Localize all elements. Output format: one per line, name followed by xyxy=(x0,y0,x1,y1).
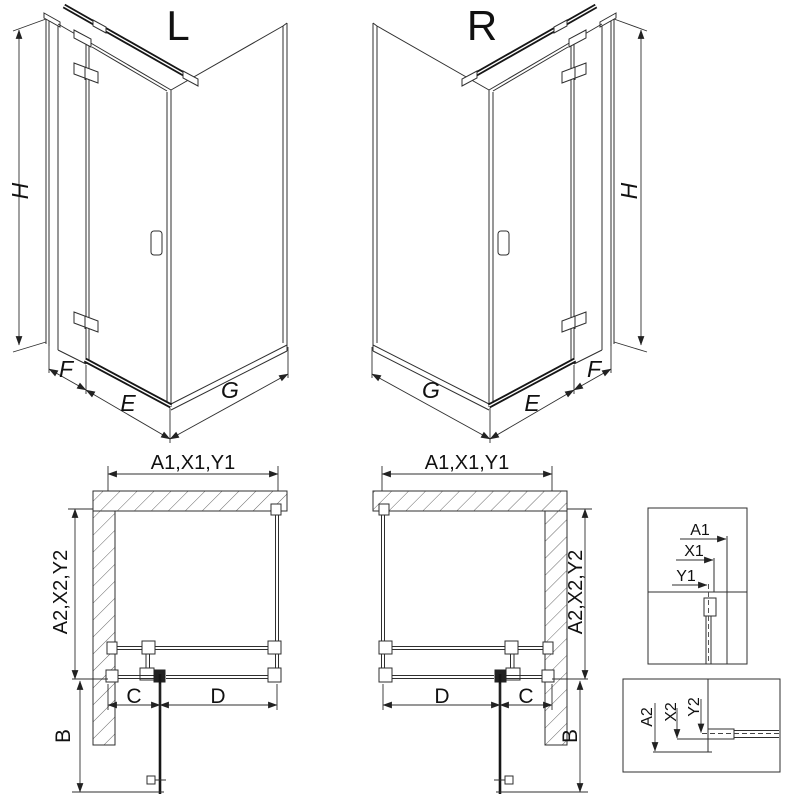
detail-bottom-glass-profile xyxy=(708,729,734,739)
technical-drawing: L H F E G R H F E G A1,X1,Y1 A2,X2,Y2 C … xyxy=(0,0,800,800)
plan-view-right: A1,X1,Y1 A2,X2,Y2 D C B xyxy=(373,452,592,794)
iso-right-g-label: G xyxy=(422,377,440,403)
iso-right-geometry xyxy=(372,6,647,443)
plan-right-b-label: B xyxy=(559,729,582,743)
variant-right-title: R xyxy=(467,2,497,49)
detail-x2-label: X2 xyxy=(663,702,680,722)
iso-right-height-label: H xyxy=(616,182,642,199)
detail-a1-label: A1 xyxy=(690,522,710,539)
iso-left-g-label: G xyxy=(221,377,239,403)
plan-right-c-label: C xyxy=(518,685,533,708)
plan-left-d-label: D xyxy=(210,685,225,708)
plan-right-back-wall xyxy=(373,491,567,511)
plan-right-d-label: D xyxy=(434,685,449,708)
iso-right-e-label: E xyxy=(524,390,540,416)
iso-left-e-label: E xyxy=(120,390,136,416)
plan-right-top-dim-label: A1,X1,Y1 xyxy=(425,452,510,474)
detail-bottom-glass xyxy=(734,731,779,738)
drawing-canvas: L H F E G R H F E G A1,X1,Y1 A2,X2,Y2 C … xyxy=(0,0,800,800)
detail-box-bottom: A2 X2 Y2 xyxy=(623,679,780,772)
iso-view-left: L H F E G xyxy=(7,2,288,443)
plan-right-side-wall xyxy=(545,511,567,745)
plan-left-top-dim-label: A1,X1,Y1 xyxy=(151,452,236,474)
plan-left-b-label: B xyxy=(52,729,75,743)
detail-a2-label: A2 xyxy=(639,707,656,727)
plan-right-side-dim-label: A2,X2,Y2 xyxy=(565,550,587,635)
detail-top-glass-profile xyxy=(704,598,716,616)
plan-left-back-wall xyxy=(93,491,287,511)
iso-left-height-label: H xyxy=(7,182,33,199)
variant-left-title: L xyxy=(166,2,189,49)
detail-box-top: A1 X1 Y1 xyxy=(648,508,747,664)
plan-left-side-wall xyxy=(93,511,115,745)
detail-y1-label: Y1 xyxy=(676,568,696,585)
iso-view-right: R H F E G xyxy=(372,2,647,443)
detail-x1-label: X1 xyxy=(684,543,704,560)
plan-left-side-dim-label: A2,X2,Y2 xyxy=(50,550,72,635)
iso-right-f-label: F xyxy=(587,356,603,382)
iso-left-f-label: F xyxy=(59,356,75,382)
plan-left-c-label: C xyxy=(126,685,141,708)
plan-view-left: A1,X1,Y1 A2,X2,Y2 C D B xyxy=(50,452,287,794)
detail-y2-label: Y2 xyxy=(686,697,703,717)
